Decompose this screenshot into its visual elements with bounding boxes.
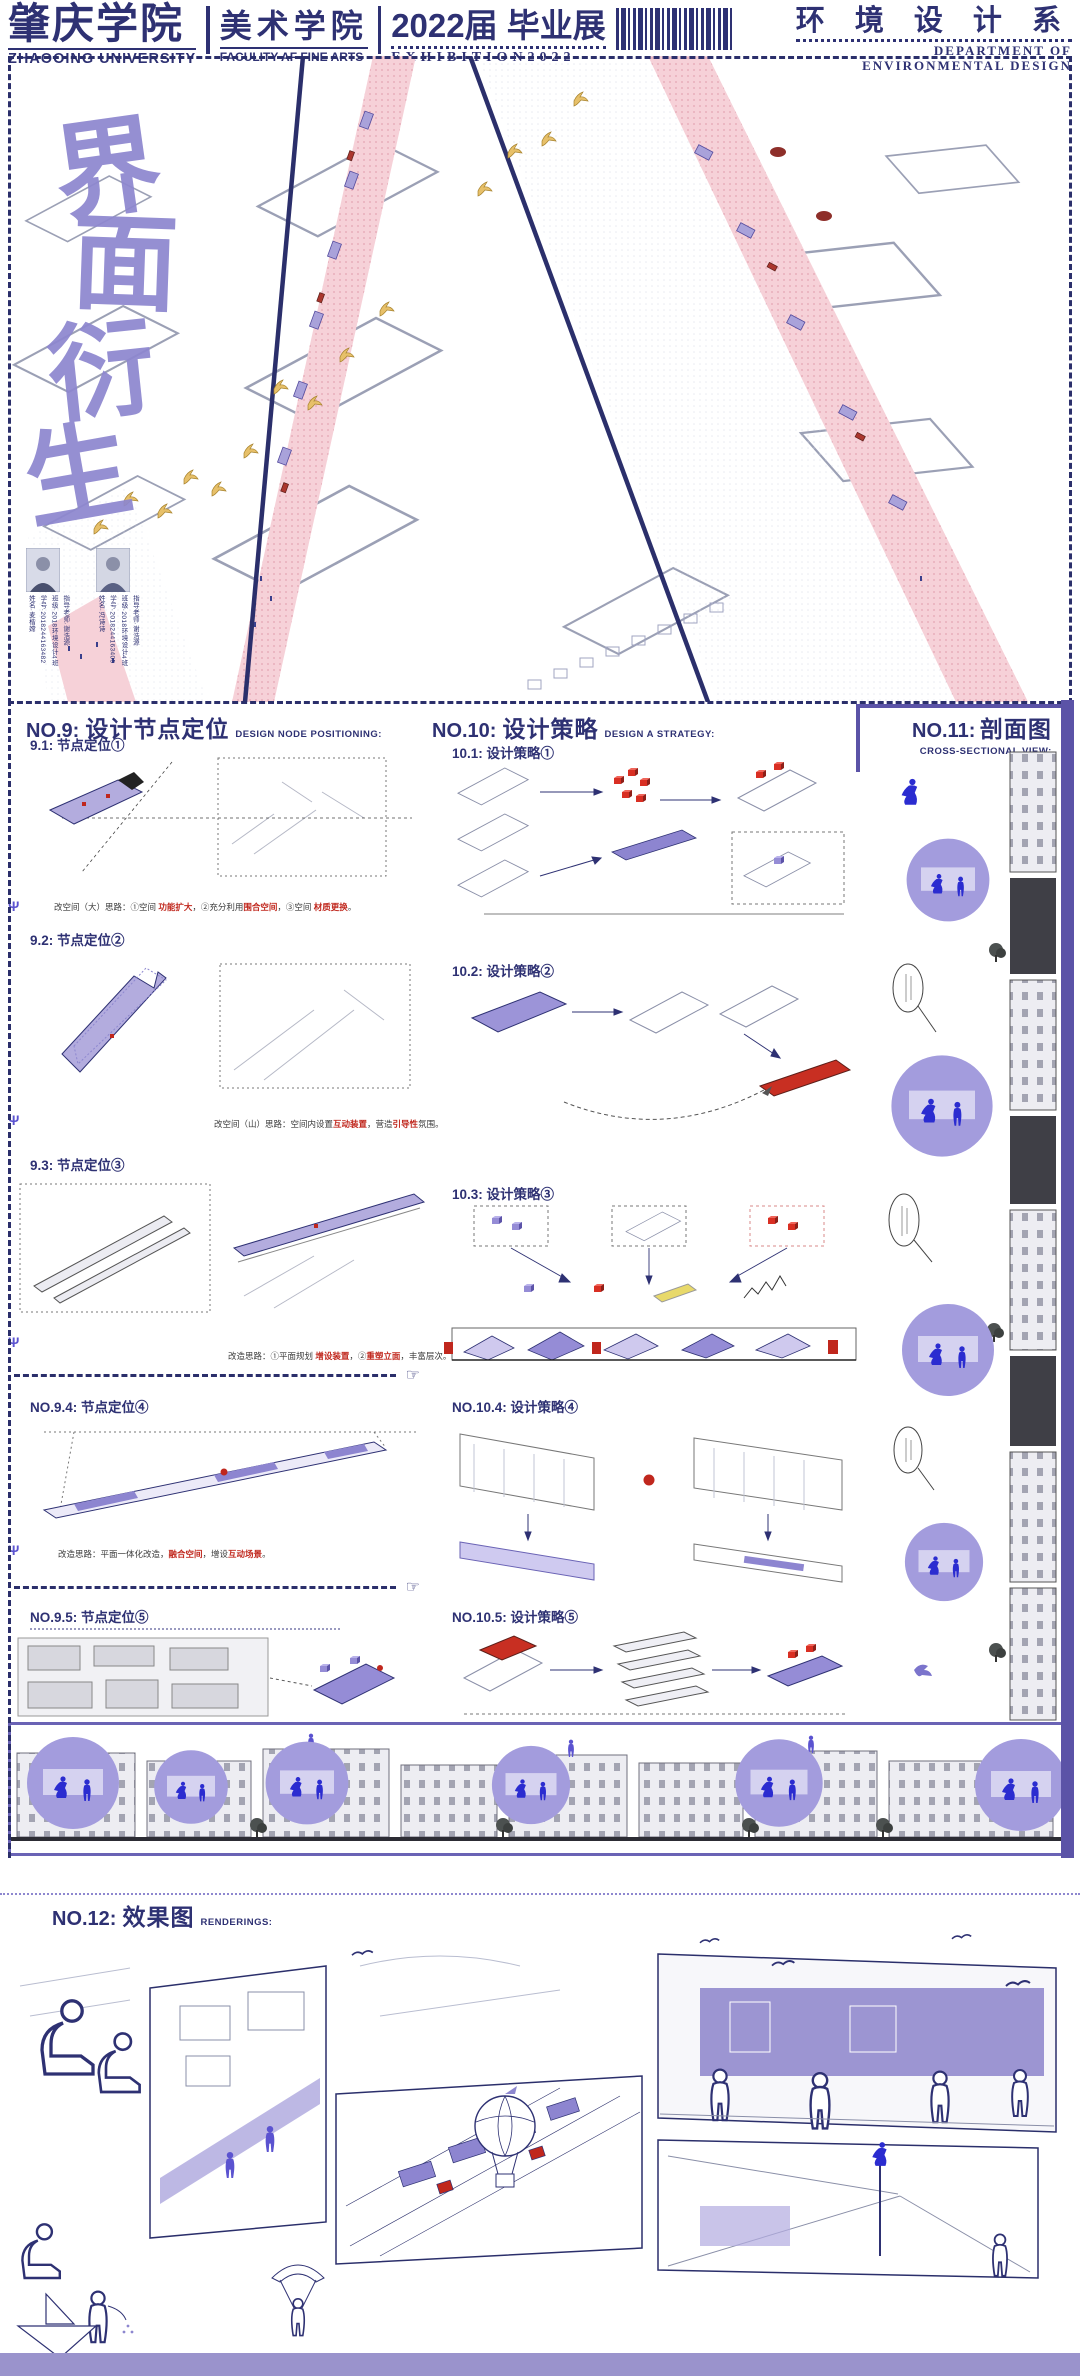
row-divider: ☞ [14, 1586, 396, 1589]
dotted-rule [30, 1628, 340, 1630]
school-name-cn: 肇庆学院 [8, 3, 196, 45]
calligraphy-char: 衍 [43, 306, 243, 427]
right-purple-bar [1061, 700, 1074, 1858]
calligraphy-char: 面 [70, 210, 263, 318]
header-divider [378, 6, 382, 54]
render-panel-street-axon [150, 1966, 326, 2238]
id-photo [96, 548, 130, 592]
section-elevation-band [8, 1722, 1070, 1856]
row-divider: ☞ [14, 1374, 396, 1377]
designer-info: 指导老师·谢浩源 班级·2018环境设计4班 学号·2018244163482 … [26, 595, 70, 695]
render-panel-street-perspective [658, 2140, 1038, 2278]
node-caption-4: 改造思路：平面一体化改造，融合空间，增设互动场景。 [58, 1548, 271, 1560]
node-caption-2: 改空间（山）思路：空间内设置互动装置，营造引导性氛围。 [214, 1118, 444, 1130]
node-plan-sketch-5 [14, 1634, 438, 1720]
strategy-diagram-3 [444, 1200, 868, 1368]
id-photo [26, 548, 60, 592]
item-label-10-5: NO.10.5: 设计策略⑤ [452, 1606, 578, 1626]
designer-card: 指导老师·谢浩源 班级·2018环境设计4班 学号·2018244163482 … [26, 548, 70, 695]
strategy-diagram-5 [444, 1628, 868, 1720]
node-plan-sketch-2 [14, 950, 426, 1100]
cross-section-column [884, 750, 1064, 1722]
pointing-hand-icon: ☞ [406, 1365, 420, 1385]
node-plan-sketch-1 [22, 752, 422, 892]
calligraphy-title: 界 面 衍 生 [26, 112, 216, 519]
pointing-hand-icon: ☞ [406, 1577, 420, 1597]
paper-boat [18, 2294, 96, 2358]
designer-cards: 指导老师·谢浩源 班级·2018环境设计4班 学号·2018244163482 … [26, 548, 139, 695]
node-plan-sketch-3 [14, 1176, 434, 1332]
sitting-figures [22, 2001, 139, 2278]
ground-line [11, 1837, 1061, 1841]
strategy-diagram-2 [444, 974, 868, 1146]
faculty-name-cn: 美术学院 [220, 10, 368, 42]
item-label-9-2: 9.2: 节点定位② [30, 929, 125, 949]
item-label-9-5: NO.9.5: 节点定位⑤ [30, 1606, 149, 1626]
section-heading-no10: NO.10: 设计策略 DESIGN A STRATEGY: [432, 710, 715, 744]
designer-card: 指导老师·谢浩源 班级·2018环境设计4班 学号·2018244163405 … [96, 548, 140, 695]
left-dashed-rail [8, 700, 11, 1858]
section-elevation-drawing [11, 1725, 1061, 1847]
exhibition-poster: 肇庆学院 ZHAOOING UNIVERSITY 美术学院 FACULITY A… [0, 0, 1080, 2376]
department-name-cn: 环 境 设 计 系 [796, 7, 1072, 36]
calligraphy-char: 生 [17, 402, 222, 535]
designer-info: 指导老师·谢浩源 班级·2018环境设计4班 学号·2018244163405 … [96, 595, 140, 695]
barcode-icon [616, 8, 732, 50]
node-caption-1: 改空间（大）思路：①空间 功能扩大，②充分利用围合空间，③空间 材质更换。 [54, 901, 356, 913]
item-label-9-1: 9.1: 节点定位① [30, 734, 125, 754]
item-label-10-4: NO.10.4: 设计策略④ [452, 1396, 578, 1416]
dotted-separator [0, 1893, 1080, 1895]
strategy-diagram-1 [444, 756, 868, 924]
watering-figure [89, 2292, 133, 2343]
faculty-title-block: 美术学院 FACULITY AF FINE ARTS [220, 3, 368, 63]
header-divider [206, 6, 210, 54]
item-label-9-3: 9.3: 节点定位③ [30, 1154, 125, 1174]
node-plan-sketch-4 [14, 1414, 434, 1540]
strategy-diagram-4 [444, 1414, 868, 1590]
callout-bubble [889, 964, 936, 1490]
footer-bar [0, 2353, 1080, 2376]
node-caption-3: 改造思路：①平面规划 增设装置，②重塑立面，丰富层次。 [228, 1350, 451, 1362]
item-label-9-4: NO.9.4: 节点定位④ [30, 1396, 149, 1416]
rotated-building-strip [987, 752, 1056, 1720]
render-panel-gallery-interior [658, 1954, 1056, 2132]
renderings-collage [0, 1926, 1080, 2376]
parachute-figure [272, 2265, 324, 2336]
exhibition-title-cn: 2022届 毕业展 [391, 9, 606, 42]
poster-header: 肇庆学院 ZHAOOING UNIVERSITY 美术学院 FACULITY A… [0, 0, 1080, 58]
